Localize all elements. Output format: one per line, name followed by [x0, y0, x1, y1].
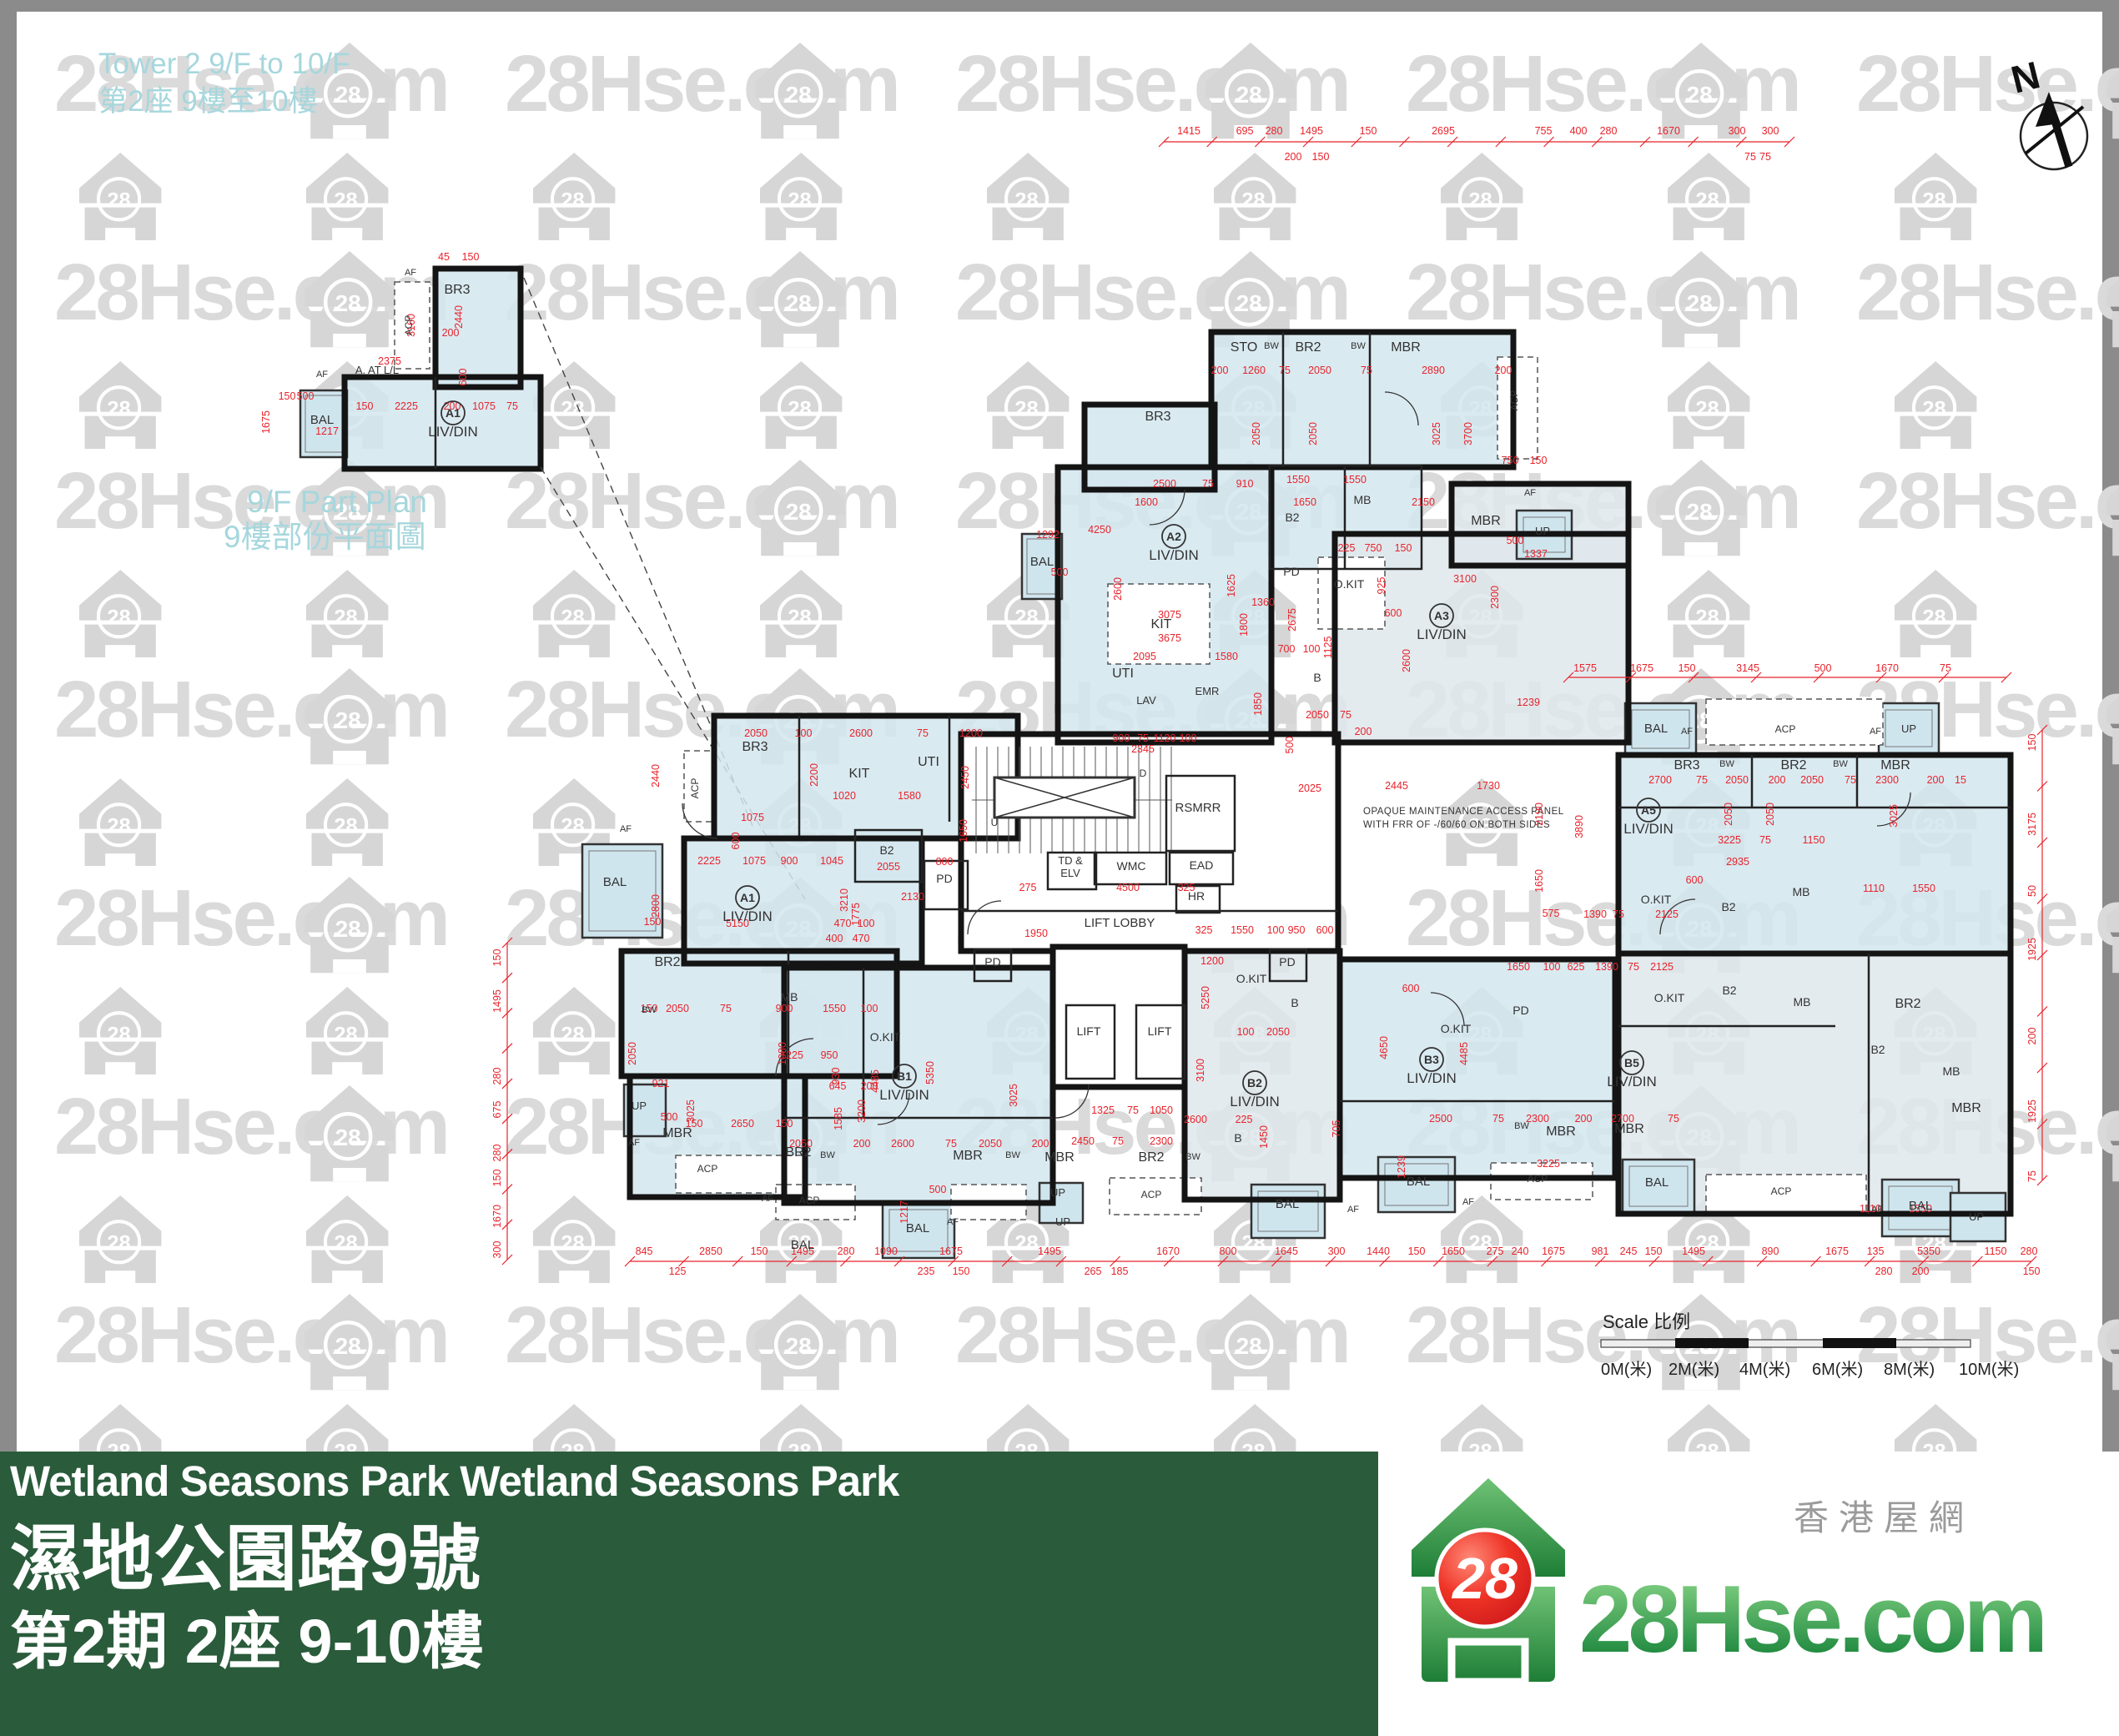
dim-3700: 3700: [1462, 422, 1474, 445]
dim-2050: 2050: [1266, 1026, 1290, 1038]
dim-1925: 1925: [2026, 1099, 2038, 1123]
dim-75: 75: [1845, 774, 1856, 786]
dim-150: 150: [776, 1118, 793, 1130]
dim-75: 75: [1940, 662, 1951, 674]
dim-500: 500: [661, 1111, 678, 1123]
north-compass-icon: N: [2007, 53, 2087, 169]
scale-bar: Scale 比例 0M(米)2M(米)4M(米)6M(米)8M(米)10M(米): [1601, 1311, 2019, 1379]
dim-1675: 1675: [939, 1245, 963, 1257]
dim-1225: 1225: [780, 1049, 803, 1061]
room-label-bal: BAL: [1407, 1175, 1430, 1189]
dim-1150: 1150: [1803, 834, 1825, 846]
dim-75: 75: [1744, 151, 1756, 163]
dim-1730: 1730: [1477, 780, 1500, 792]
dim-1550: 1550: [1231, 924, 1254, 936]
unit-id-B3: B3: [1424, 1053, 1439, 1066]
dim-2445: 2445: [1385, 780, 1408, 792]
dim-3100: 3100: [1453, 573, 1477, 585]
dim-150: 150: [1312, 151, 1330, 163]
dim-280: 280: [838, 1245, 855, 1257]
page: 28Hse.com2828Hse.com2828Hse.com2828Hse.c…: [0, 0, 2119, 1736]
dim-845: 845: [636, 1245, 653, 1257]
dim-200: 200: [442, 327, 460, 339]
dim-2050: 2050: [1725, 774, 1749, 786]
dim-3145: 3145: [1736, 662, 1759, 674]
room-label-mb: MB: [1354, 493, 1372, 506]
room-label-af: AF: [1462, 1197, 1474, 1207]
room-label-acp: ACP: [799, 1195, 820, 1206]
dim-750: 750: [1365, 542, 1382, 554]
dim-2025: 2025: [1298, 782, 1321, 794]
room-label-a-at-l-l: A. AT L/L: [355, 364, 399, 376]
room-label-b2: B2: [1285, 511, 1299, 524]
dim-150: 150: [1679, 662, 1696, 674]
dim-200: 200: [853, 1138, 871, 1150]
room-label-mb: MB: [781, 990, 798, 1004]
dim-75: 75: [1279, 365, 1291, 376]
dim-3025: 3025: [1888, 804, 1900, 828]
dim-1390: 1390: [1583, 908, 1607, 920]
room-label-mb: MB: [1943, 1064, 1960, 1078]
dim-1670: 1670: [1875, 662, 1899, 674]
dim-185: 185: [1111, 1266, 1129, 1277]
dim-1670: 1670: [1156, 1245, 1180, 1257]
room-label-pd: PD: [936, 872, 952, 885]
dim-2050: 2050: [1307, 422, 1319, 445]
dim-1650: 1650: [1293, 496, 1316, 508]
unit-livdin-A1: LIV/DIN: [722, 908, 773, 924]
dim-705: 705: [1331, 1120, 1342, 1138]
dim-600: 600: [730, 833, 742, 850]
dim-100: 100: [795, 727, 813, 739]
28hse-logo: 28 28Hse.com 香港屋網: [1408, 1475, 2117, 1725]
dim-75: 75: [1202, 478, 1214, 490]
dim-150: 150: [279, 390, 296, 402]
room-label-o-kit: O.KIT: [1236, 972, 1267, 985]
room-label-pd: PD: [1512, 1004, 1528, 1017]
dim-2850: 2850: [699, 1245, 722, 1257]
dim-1075: 1075: [741, 812, 764, 823]
unit-id-B2: B2: [1247, 1076, 1262, 1089]
dim-2130: 2130: [901, 891, 924, 903]
room-label-b2: B2: [879, 843, 893, 857]
dim-2300: 2300: [1526, 1113, 1549, 1125]
dim-1440: 1440: [1367, 1245, 1390, 1257]
unit-id-B1: B1: [897, 1069, 912, 1083]
room-label-bal: BAL: [1030, 555, 1054, 569]
room-label-br2: BR2: [1138, 1150, 1164, 1165]
dim-225: 225: [1338, 542, 1356, 554]
room-label-bal: BAL: [603, 875, 627, 889]
dim-280: 280: [1266, 125, 1283, 137]
dim-600: 600: [1402, 983, 1420, 994]
dim-400: 400: [826, 933, 843, 944]
dim-150: 150: [1645, 1245, 1663, 1257]
dim-5350: 5350: [1917, 1245, 1940, 1257]
dim-200: 200: [1495, 365, 1512, 376]
dim-75: 75: [506, 400, 518, 412]
dim-1045: 1045: [820, 855, 843, 867]
dim-1239: 1239: [1517, 697, 1540, 708]
room-label-ead: EAD: [1190, 858, 1214, 872]
room-label-bal: BAL: [1644, 722, 1668, 736]
dim-1800: 1800: [1238, 613, 1250, 637]
room-label-bw: BW: [1351, 341, 1366, 351]
dim-75: 75: [1696, 774, 1708, 786]
dim-200: 200: [1575, 1113, 1593, 1125]
dim-100: 100: [1543, 961, 1561, 973]
room-label-bal: BAL: [310, 413, 334, 427]
dim-2200: 2200: [808, 763, 820, 787]
dim-1325: 1325: [1091, 1104, 1115, 1116]
room-label-mbr: MBR: [1880, 758, 1910, 772]
dim-150: 150: [1530, 455, 1548, 466]
room-label-af: AF: [628, 1138, 640, 1148]
dim-1050: 1050: [1150, 1104, 1173, 1116]
dim-3200: 3200: [856, 1099, 868, 1123]
room-label-lift: LIFT: [1077, 1024, 1101, 1038]
dim-2600: 2600: [1401, 649, 1412, 672]
unit-id-A3: A3: [1434, 609, 1449, 622]
unit-livdin-A1: LIV/DIN: [428, 424, 478, 440]
logo-caption: 香港屋網: [1794, 1498, 1974, 1537]
dim-3225: 3225: [1537, 1158, 1560, 1170]
dim-2450: 2450: [1071, 1135, 1095, 1147]
dim-75: 75: [720, 1003, 732, 1014]
room-label-af: AF: [1681, 727, 1693, 737]
room-label-mbr: MBR: [1546, 1125, 1576, 1139]
unit-id-A1: A1: [740, 891, 755, 904]
room-label-acp: ACP: [1528, 1173, 1548, 1185]
room-label-bal: BAL: [906, 1221, 929, 1235]
dim-200: 200: [1912, 1266, 1930, 1277]
dim-2050: 2050: [744, 727, 768, 739]
dim-470: 470: [853, 933, 870, 944]
dim-150: 150: [1408, 1245, 1426, 1257]
dim-300: 300: [491, 1241, 503, 1259]
dim-4500: 4500: [1116, 882, 1140, 893]
room-label-up: UP: [1535, 525, 1550, 537]
room-label-acp: ACP: [1775, 723, 1796, 735]
dim-135: 135: [1867, 1245, 1885, 1257]
room-label-af: AF: [947, 1217, 959, 1227]
dim-75: 75: [945, 1138, 957, 1150]
room-label-bw: BW: [642, 1005, 657, 1015]
scale-label-5: 10M(米): [1959, 1360, 2019, 1379]
dim-280: 280: [1875, 1266, 1893, 1277]
unit-id-A2: A2: [1166, 530, 1181, 543]
room-label-af: AF: [1347, 1205, 1359, 1215]
unit-livdin-A5: LIV/DIN: [1623, 821, 1674, 837]
dim-1625: 1625: [1226, 574, 1237, 597]
dim-900: 900: [1113, 732, 1130, 744]
dim-1260: 1260: [1242, 365, 1266, 376]
dim-930: 930: [830, 1068, 842, 1085]
dim-2225: 2225: [395, 400, 418, 412]
dim-500: 500: [1507, 535, 1524, 546]
dim-2050: 2050: [1764, 803, 1776, 826]
dim-2890: 2890: [1422, 365, 1445, 376]
dim-280: 280: [491, 1145, 503, 1162]
dim-75: 75: [1628, 961, 1639, 973]
dim-1495: 1495: [1682, 1245, 1705, 1257]
room-label-br2: BR2: [654, 955, 680, 969]
dim-75: 75: [1492, 1113, 1504, 1125]
dim-75: 75: [1759, 151, 1771, 163]
dim-45: 45: [438, 251, 450, 263]
dim-950: 950: [821, 1049, 838, 1061]
dim-1645: 1645: [1275, 1245, 1298, 1257]
dim-1450: 1450: [1258, 1125, 1270, 1149]
dim-4650: 4650: [1378, 1036, 1390, 1059]
dim-600: 600: [1686, 874, 1704, 886]
dim-1337: 1337: [1524, 548, 1548, 560]
room-label-bw: BW: [1185, 1152, 1200, 1162]
dim-1585: 1585: [833, 1107, 844, 1130]
dim-2600: 2600: [1112, 577, 1124, 601]
dim-1670: 1670: [1657, 125, 1680, 137]
room-label-lift-lobby: LIFT LOBBY: [1085, 916, 1155, 930]
room-label-uti: UTI: [1112, 667, 1134, 681]
room-label-hr: HR: [1188, 889, 1205, 903]
dim-50: 50: [2026, 885, 2038, 897]
dim-2055: 2055: [877, 861, 900, 873]
room-label-rsmrr: RSMRR: [1175, 801, 1221, 815]
dim-200: 200: [1032, 1138, 1049, 1150]
dim-2125: 2125: [1655, 908, 1679, 920]
floor-plan: Tower 2 9/F to 10/F 第2座 9樓至10樓 9/F Part …: [0, 0, 2119, 1452]
dim-275: 275: [1487, 1245, 1504, 1257]
dim-2675: 2675: [1286, 608, 1298, 632]
room-label-up: UP: [1969, 1210, 1984, 1223]
room-label-mbr: MBR: [1471, 514, 1501, 528]
room-label-b2: B2: [1722, 984, 1736, 997]
room-label-o-kit: O.KIT: [1441, 1022, 1472, 1035]
dim-1575: 1575: [1573, 662, 1597, 674]
dim-1675: 1675: [260, 410, 272, 434]
logo-badge: 28: [1451, 1546, 1518, 1611]
room-label-mbr: MBR: [1391, 340, 1421, 355]
room-label-up: UP: [1050, 1186, 1065, 1199]
room-label-mbr: MBR: [1951, 1101, 1981, 1115]
dim-3890: 3890: [1573, 815, 1585, 838]
dim-1550: 1550: [823, 1003, 846, 1014]
dim-2695: 2695: [1432, 125, 1455, 137]
dim-280: 280: [2021, 1245, 2038, 1257]
dim-2050: 2050: [1723, 803, 1734, 826]
room-label-mbr: MBR: [1614, 1122, 1644, 1136]
dim-1675: 1675: [1825, 1245, 1849, 1257]
dim-325: 325: [1195, 924, 1213, 936]
unit-livdin-B2: LIV/DIN: [1230, 1094, 1280, 1110]
room-label-o-kit: O.KIT: [870, 1030, 901, 1044]
plan-title-zh: 第2座 9樓至10樓: [98, 85, 318, 118]
unit-id-A5: A5: [1641, 803, 1656, 817]
dim-2300: 2300: [1150, 1135, 1173, 1147]
room-label-u: U: [991, 817, 999, 828]
dim-600: 600: [457, 369, 469, 386]
room-label-af: AF: [405, 268, 416, 278]
dim-700: 700: [1278, 643, 1296, 655]
dim-300: 300: [1729, 125, 1746, 137]
dim-3025: 3025: [1008, 1084, 1019, 1107]
dim-235: 235: [918, 1266, 935, 1277]
scale-label-0: 0M(米): [1601, 1360, 1652, 1379]
dim-1550: 1550: [1286, 474, 1310, 486]
dim-500: 500: [1814, 662, 1832, 674]
room-label-mb: MB: [1793, 885, 1810, 898]
unit-livdin-A2: LIV/DIN: [1149, 547, 1199, 563]
unit-livdin-B5: LIV/DIN: [1607, 1074, 1657, 1089]
dim-1415: 1415: [1177, 125, 1200, 137]
dim-150: 150: [1360, 125, 1377, 137]
room-label-af: AF: [1524, 488, 1536, 498]
room-label-br2: BR2: [785, 1145, 811, 1160]
dim-600: 600: [1316, 924, 1334, 936]
dim-225: 225: [1236, 1114, 1253, 1125]
dim-900: 900: [781, 855, 798, 867]
dim-75: 75: [1668, 1113, 1679, 1125]
dim-400: 400: [1570, 125, 1588, 137]
footer-banner: Wetland Seasons Park Wetland Seasons Par…: [0, 1452, 1378, 1736]
dim-2800: 2800: [650, 894, 662, 918]
room-label-up: UP: [1901, 722, 1916, 735]
scale-title: Scale 比例: [1603, 1311, 1690, 1332]
scale-label-2: 4M(米): [1739, 1360, 1790, 1379]
dim-150: 150: [2026, 734, 2038, 752]
dim-675: 675: [491, 1101, 503, 1119]
dim-2650: 2650: [731, 1118, 754, 1130]
dim-3225: 3225: [1718, 834, 1741, 846]
plan-title-en: Tower 2 9/F to 10/F: [98, 48, 350, 80]
dim-2700: 2700: [1648, 774, 1672, 786]
unit-id-A1: A1: [445, 406, 461, 420]
dim-2050: 2050: [627, 1042, 638, 1065]
room-label-kit: KIT: [849, 767, 870, 781]
room-label-b: B: [1234, 1131, 1241, 1145]
dim-1600: 1600: [1135, 496, 1158, 508]
dim-1120: 1120: [1154, 732, 1176, 744]
room-label-af: AF: [620, 824, 632, 834]
dim-1200: 1200: [959, 727, 983, 739]
dim-1110: 1110: [1863, 883, 1885, 894]
estate-address-zh: 濕地公園路9號: [10, 1500, 481, 1604]
dim-2050: 2050: [979, 1138, 1002, 1150]
room-label-br3: BR3: [444, 283, 470, 297]
dim-100: 100: [1303, 643, 1321, 655]
logo-house-icon: 28: [1412, 1478, 1565, 1682]
room-label-bw: BW: [1719, 759, 1734, 769]
compass-n-label: N: [2007, 53, 2045, 101]
dim-75: 75: [917, 727, 929, 739]
dim-2500: 2500: [1429, 1113, 1452, 1125]
dim-1495: 1495: [1300, 125, 1323, 137]
dim-1495: 1495: [1038, 1245, 1061, 1257]
dim-300: 300: [1762, 125, 1779, 137]
dim-1950: 1950: [1024, 928, 1048, 939]
dim-2345: 2345: [1131, 743, 1155, 755]
dim-1217: 1217: [898, 1200, 910, 1224]
dim-1850: 1850: [1252, 692, 1264, 716]
dim-1360: 1360: [1251, 596, 1275, 608]
room-label-bw: BW: [1514, 1121, 1529, 1131]
room-label-acp: ACP: [689, 778, 701, 799]
dim-890: 890: [1762, 1245, 1779, 1257]
dim-75: 75: [2026, 1170, 2038, 1182]
dim-1075: 1075: [742, 855, 766, 867]
room-label-lift: LIFT: [1148, 1024, 1172, 1038]
dim-2150: 2150: [1412, 496, 1435, 508]
dim-1925: 1925: [2026, 938, 2038, 961]
dim-921: 921: [652, 1078, 670, 1089]
room-label-o-kit: O.KIT: [1641, 893, 1672, 906]
dim-625: 625: [1568, 961, 1585, 973]
dim-1125: 1125: [1322, 637, 1334, 659]
part-plan-title-en: 9/F Part Plan: [247, 485, 427, 519]
dim-575: 575: [1543, 908, 1560, 919]
dim-2050: 2050: [1251, 422, 1262, 445]
dim-3210: 3210: [838, 888, 850, 912]
dim-1550: 1550: [1912, 883, 1935, 894]
room-label-mb: MB: [1794, 995, 1811, 1009]
dim-2050: 2050: [1308, 365, 1331, 376]
dim-125: 125: [669, 1266, 687, 1277]
room-label-pd: PD: [984, 955, 1000, 969]
dim-75: 75: [1127, 1104, 1139, 1116]
room-label-bal: BAL: [1276, 1197, 1299, 1211]
dim-3675: 3675: [1158, 632, 1181, 644]
dim-240: 240: [1512, 1245, 1529, 1257]
dim-200: 200: [1285, 151, 1302, 163]
dim-300: 300: [1328, 1245, 1346, 1257]
room-label-elv: ELV: [1060, 867, 1080, 879]
dim-275: 275: [1019, 882, 1037, 893]
dim-750: 750: [1502, 455, 1519, 466]
dim-2300: 2300: [1875, 774, 1899, 786]
dim-2500: 2500: [1153, 478, 1176, 490]
room-label-d: D: [1140, 767, 1147, 779]
dim-981: 981: [1592, 1245, 1609, 1257]
room-label-b: B: [1291, 996, 1298, 1009]
dim-2050: 2050: [666, 1003, 689, 1014]
room-label-uti: UTI: [918, 755, 939, 769]
dim-950: 950: [1288, 924, 1306, 936]
room-label-af: AF: [1870, 727, 1881, 737]
footer: Wetland Seasons Park Wetland Seasons Par…: [0, 1452, 2119, 1736]
dim-1150: 1150: [1985, 1245, 2007, 1257]
room-label-acp: ACP: [1141, 1189, 1162, 1200]
room-label-br2: BR2: [1895, 997, 1920, 1011]
room-label-sto: STO: [1231, 340, 1258, 355]
dim-1217: 1217: [315, 425, 339, 437]
dim-100: 100: [861, 1003, 878, 1014]
unit-livdin-B1: LIV/DIN: [879, 1087, 929, 1103]
room-label-bal: BAL: [791, 1238, 814, 1252]
room-label-pd: PD: [1279, 955, 1295, 969]
dim-4250: 4250: [1088, 524, 1111, 536]
room-label-br3: BR3: [1674, 758, 1699, 772]
dim-2095: 2095: [1133, 651, 1156, 662]
dim-100: 100: [1180, 732, 1197, 744]
room-label-up: UP: [1055, 1215, 1070, 1228]
room-label-mbr: MBR: [953, 1149, 983, 1163]
dim-470: 470: [834, 918, 852, 929]
maintenance-note-2: WITH FRR OF -/60/60 ON BOTH SIDES: [1363, 820, 1550, 830]
dim-925: 925: [1376, 577, 1387, 595]
unit-livdin-B3: LIV/DIN: [1407, 1070, 1457, 1086]
dim-2050: 2050: [1306, 709, 1329, 721]
room-label-pd: PD: [1283, 565, 1299, 578]
